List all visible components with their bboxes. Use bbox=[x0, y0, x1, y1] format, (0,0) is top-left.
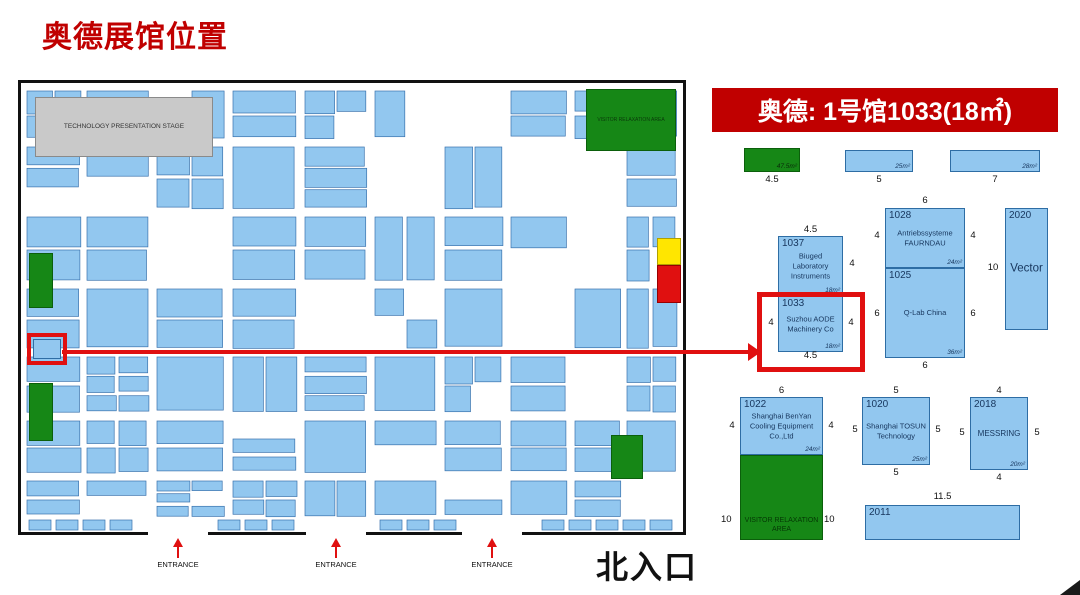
map-booth bbox=[110, 520, 132, 530]
aode-booth-highlight-box bbox=[757, 292, 865, 372]
map-booth bbox=[87, 481, 146, 495]
map-booth bbox=[627, 289, 648, 348]
map-booth bbox=[87, 250, 147, 280]
map-booth bbox=[511, 217, 566, 248]
map-booth bbox=[542, 520, 564, 530]
map-booth bbox=[305, 168, 367, 187]
map-booth bbox=[233, 481, 263, 497]
map-booth bbox=[380, 520, 402, 530]
entrance-arrow-stem bbox=[177, 546, 179, 558]
map-booth bbox=[157, 448, 223, 471]
north-entrance-label: 北入口 bbox=[596, 542, 698, 588]
map-booth bbox=[305, 250, 365, 279]
dimension-label: 4 bbox=[966, 230, 980, 241]
map-booth bbox=[119, 396, 149, 411]
area-label: 24m² bbox=[805, 446, 820, 453]
map-booth bbox=[627, 357, 650, 383]
dimension-label: 4 bbox=[725, 420, 739, 431]
detail-green-bar: 47.5m² bbox=[744, 148, 800, 172]
map-booth bbox=[157, 179, 189, 207]
booth-name: Q-Lab China bbox=[888, 308, 962, 318]
map-booth bbox=[305, 421, 366, 472]
dimension-label: 6 bbox=[870, 308, 884, 319]
aode-location-highlight-box bbox=[27, 333, 67, 365]
map-booth bbox=[337, 91, 366, 111]
dimension-label: 5 bbox=[862, 467, 930, 478]
map-booth bbox=[87, 376, 114, 392]
area-label: 25m² bbox=[912, 456, 927, 463]
map-booth bbox=[272, 520, 294, 530]
map-booth bbox=[627, 386, 650, 411]
entrance-label: ENTRANCE bbox=[148, 560, 208, 569]
stage-label: TECHNOLOGY PRESENTATION STAGE bbox=[64, 123, 184, 131]
map-booth bbox=[87, 217, 148, 247]
map-relaxation-area: VISITOR RELAXATION AREA bbox=[586, 89, 676, 151]
map-booth bbox=[305, 91, 335, 114]
dimension-label: 4 bbox=[824, 420, 838, 431]
map-booth bbox=[337, 481, 366, 516]
map-yellow-booth bbox=[657, 238, 681, 265]
dimension-label: 4 bbox=[970, 385, 1028, 396]
booth-number: 1037 bbox=[782, 238, 804, 249]
map-booth bbox=[627, 217, 648, 247]
map-booth bbox=[266, 357, 297, 412]
map-booth bbox=[596, 520, 618, 530]
map-booth bbox=[475, 147, 502, 207]
map-booth bbox=[27, 500, 79, 514]
map-booth bbox=[445, 250, 502, 280]
map-booth bbox=[233, 289, 296, 316]
map-booth bbox=[83, 520, 105, 530]
map-booth bbox=[575, 481, 621, 497]
map-booth bbox=[233, 357, 263, 411]
map-booth bbox=[575, 500, 620, 517]
map-booth bbox=[119, 421, 146, 446]
map-booth bbox=[375, 289, 404, 315]
map-booth bbox=[375, 481, 436, 515]
booth-number: 2020 bbox=[1009, 210, 1031, 221]
booth-number: 1022 bbox=[744, 399, 766, 410]
map-booth bbox=[266, 500, 295, 517]
map-booth bbox=[569, 520, 591, 530]
entrance-gap bbox=[306, 531, 366, 537]
booth-1025: 1025 Q-Lab China 36m² bbox=[885, 268, 965, 358]
booth-name: Antriebssysteme FAURNDAU bbox=[888, 228, 962, 248]
map-booth bbox=[27, 168, 78, 187]
map-booth bbox=[87, 357, 115, 374]
map-booth bbox=[233, 147, 294, 208]
map-booth bbox=[305, 481, 335, 516]
floor-plan: TECHNOLOGY PRESENTATION STAGE VISITOR RE… bbox=[18, 80, 686, 535]
map-booth bbox=[56, 520, 78, 530]
map-booth bbox=[305, 217, 366, 246]
dimension-label: 7 bbox=[950, 174, 1040, 185]
map-booth bbox=[27, 481, 79, 496]
map-booth bbox=[87, 421, 114, 444]
booth-number: 2011 bbox=[869, 507, 891, 518]
map-booth bbox=[407, 320, 437, 348]
map-booth bbox=[245, 520, 267, 530]
dimension-label: 5 bbox=[1030, 427, 1044, 438]
dimension-label: 11.5 bbox=[865, 491, 1020, 502]
booth-name: Shanghai BenYan Cooling Equipment Co.,Lt… bbox=[743, 411, 820, 440]
map-booth bbox=[511, 357, 565, 383]
map-booth bbox=[233, 250, 295, 280]
map-booth bbox=[627, 179, 676, 206]
map-booth bbox=[233, 217, 296, 246]
booth-name: Shanghai TOSUN Technology bbox=[865, 421, 927, 441]
map-booth bbox=[233, 439, 295, 452]
map-booth bbox=[653, 386, 675, 412]
map-booth bbox=[119, 376, 148, 391]
map-booth bbox=[445, 357, 473, 384]
map-booth bbox=[233, 91, 295, 113]
booth-1022: 1022 Shanghai BenYan Cooling Equipment C… bbox=[740, 397, 823, 455]
detail-panel-header: 奥德: 1号馆1033(18㎡) bbox=[712, 88, 1058, 132]
map-booth bbox=[87, 289, 148, 347]
entrance-label: ENTRANCE bbox=[462, 560, 522, 569]
area-label: 20m² bbox=[1010, 461, 1025, 468]
map-red-booth bbox=[657, 265, 681, 303]
map-booth bbox=[511, 421, 566, 446]
technology-presentation-stage: TECHNOLOGY PRESENTATION STAGE bbox=[35, 97, 213, 157]
map-booth bbox=[445, 421, 500, 445]
map-booth bbox=[27, 217, 81, 247]
map-booth bbox=[434, 520, 456, 530]
entrance-gap bbox=[462, 531, 522, 537]
map-booth bbox=[305, 190, 367, 207]
detail-blue-bar: 28m² bbox=[950, 150, 1040, 172]
map-booth bbox=[29, 520, 51, 530]
map-booth bbox=[653, 357, 676, 381]
corner-mark bbox=[1060, 580, 1080, 595]
entrance-arrow-stem bbox=[335, 546, 337, 558]
map-booth bbox=[157, 481, 190, 491]
booth-2018-messring: 2018 MESSRING 20m² bbox=[970, 397, 1028, 470]
locator-arrow-line bbox=[62, 350, 750, 354]
dimension-label: 6 bbox=[885, 360, 965, 371]
booth-name: Biuged Laboratory Instruments bbox=[781, 251, 840, 280]
map-booth bbox=[233, 500, 264, 514]
map-booth bbox=[627, 250, 649, 281]
map-booth bbox=[266, 481, 297, 497]
map-booth bbox=[305, 357, 366, 372]
dimension-label: 10 bbox=[721, 514, 732, 525]
map-booth bbox=[511, 448, 566, 471]
area-label: 25m² bbox=[895, 163, 910, 170]
dimension-label: 4 bbox=[970, 472, 1028, 483]
booth-name: Vector bbox=[1008, 262, 1045, 277]
map-booth bbox=[511, 386, 565, 411]
area-label: 24m² bbox=[947, 259, 962, 266]
map-booth bbox=[233, 116, 296, 137]
dimension-label: 5 bbox=[845, 174, 913, 185]
map-booth bbox=[192, 506, 224, 516]
map-booth bbox=[192, 481, 222, 491]
dimension-label: 4 bbox=[870, 230, 884, 241]
dimension-label: 5 bbox=[955, 427, 969, 438]
map-booth bbox=[511, 481, 567, 514]
dimension-label: 6 bbox=[740, 385, 823, 396]
map-green-area bbox=[29, 383, 53, 441]
booth-2011: 2011 bbox=[865, 505, 1020, 540]
map-relaxation-label: VISITOR RELAXATION AREA bbox=[597, 117, 664, 123]
map-booth bbox=[157, 494, 190, 502]
dimension-label: 6 bbox=[966, 308, 980, 319]
dimension-label: 10 bbox=[986, 262, 1000, 273]
map-booth bbox=[119, 448, 148, 472]
map-booth bbox=[445, 289, 502, 346]
map-booth bbox=[375, 91, 405, 137]
booth-name: MESSRING bbox=[973, 428, 1025, 438]
map-booth bbox=[407, 217, 434, 280]
map-booth bbox=[445, 448, 501, 471]
dimension-label: 5 bbox=[931, 424, 945, 435]
map-booth bbox=[157, 421, 223, 444]
dimension-label: 5 bbox=[848, 424, 862, 435]
page-title: 奥德展馆位置 bbox=[42, 12, 228, 56]
booth-number: 1025 bbox=[889, 270, 911, 281]
dimension-label: 4.5 bbox=[778, 224, 843, 235]
booth-1020: 1020 Shanghai TOSUN Technology 25m² bbox=[862, 397, 930, 465]
area-label: 47.5m² bbox=[777, 163, 797, 170]
map-booth bbox=[192, 179, 223, 209]
map-booth bbox=[87, 396, 116, 411]
booth-number: 2018 bbox=[974, 399, 996, 410]
detail-header-text: 奥德: 1号馆1033(18㎡) bbox=[758, 92, 1012, 128]
map-booth bbox=[511, 116, 565, 136]
booth-1028: 1028 Antriebssysteme FAURNDAU 24m² bbox=[885, 208, 965, 268]
booth-number: 1020 bbox=[866, 399, 888, 410]
map-booth bbox=[445, 217, 503, 246]
entrance-label: ENTRANCE bbox=[306, 560, 366, 569]
map-booth bbox=[305, 376, 366, 393]
map-booth bbox=[375, 217, 402, 280]
dimension-label: 4.5 bbox=[744, 174, 800, 185]
map-booth bbox=[445, 386, 471, 412]
area-label: 28m² bbox=[1022, 163, 1037, 170]
map-booth bbox=[87, 448, 115, 473]
dimension-label: 10 bbox=[824, 514, 835, 525]
map-booth bbox=[575, 289, 621, 348]
dimension-label: 5 bbox=[862, 385, 930, 396]
visitor-relaxation-area: VISITOR RELAXATION AREA bbox=[740, 455, 823, 540]
map-booth bbox=[27, 448, 81, 472]
map-booth bbox=[445, 147, 473, 209]
map-booth bbox=[650, 520, 672, 530]
map-green-area bbox=[29, 253, 53, 308]
map-booth bbox=[233, 320, 294, 348]
map-booth bbox=[305, 147, 364, 166]
map-booth bbox=[119, 357, 148, 373]
map-booth bbox=[475, 357, 501, 382]
area-label: 36m² bbox=[947, 349, 962, 356]
dimension-label: 4 bbox=[845, 258, 859, 269]
locator-arrow-head-icon bbox=[748, 343, 761, 361]
entrance-arrow-stem bbox=[491, 546, 493, 558]
map-booth bbox=[157, 289, 222, 317]
booth-number: 1028 bbox=[889, 210, 911, 221]
map-booth bbox=[407, 520, 429, 530]
booth-1037: 1037 Biuged Laboratory Instruments 18m² bbox=[778, 236, 843, 296]
detail-blue-bar: 25m² bbox=[845, 150, 913, 172]
map-green-area bbox=[611, 435, 643, 479]
booth-2020-vector: 2020 Vector bbox=[1005, 208, 1048, 330]
dimension-label: 6 bbox=[885, 195, 965, 206]
map-booth bbox=[511, 91, 566, 114]
map-booth bbox=[627, 147, 675, 175]
map-booth bbox=[305, 396, 364, 411]
map-booth bbox=[445, 500, 502, 515]
map-booth bbox=[157, 320, 223, 347]
entrance-gap bbox=[148, 531, 208, 537]
map-booth bbox=[623, 520, 645, 530]
map-booth bbox=[375, 357, 435, 411]
map-booth bbox=[157, 506, 188, 516]
map-booth bbox=[375, 421, 436, 445]
map-booth bbox=[305, 116, 334, 139]
visitor-area-label: VISITOR RELAXATION AREA bbox=[743, 516, 820, 534]
map-booth bbox=[157, 357, 223, 410]
map-booth bbox=[233, 457, 296, 470]
map-booth bbox=[218, 520, 240, 530]
